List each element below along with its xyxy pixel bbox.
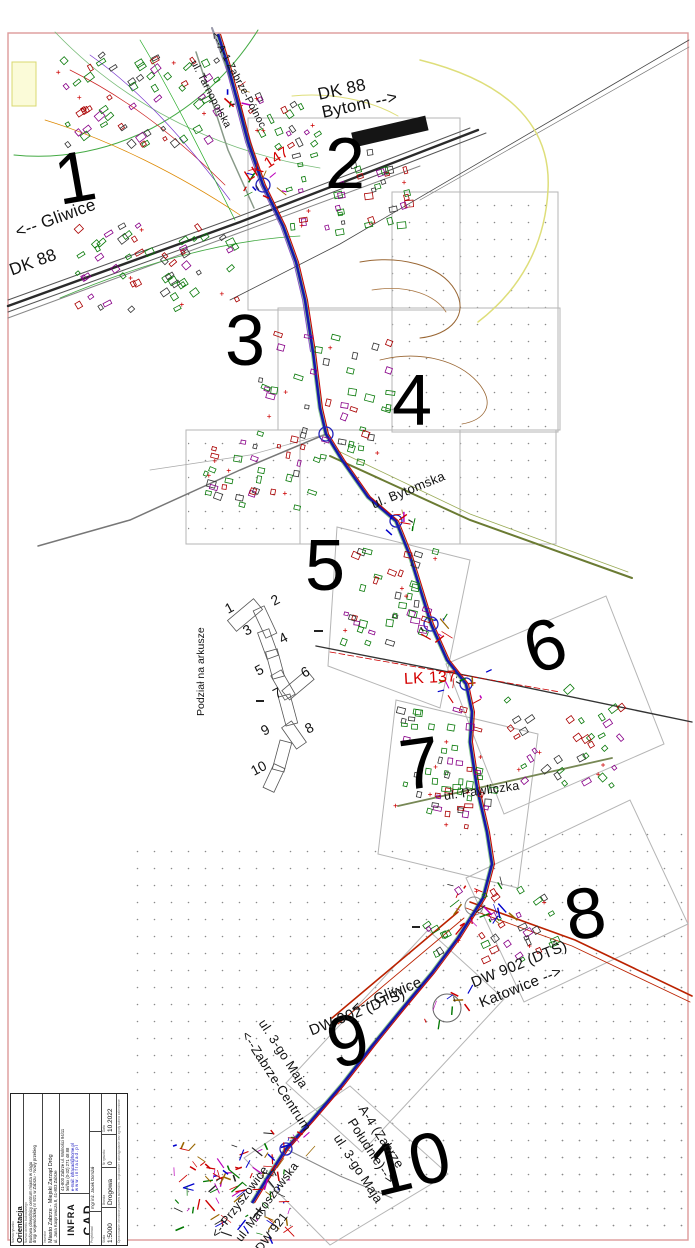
tb-investor-line2: ul. Jana Kasprowicza 8, 41-803 Zabrze — [54, 1096, 59, 1243]
sheet-index-title: Podział na arkusze — [195, 627, 207, 716]
sheet-number-5: 5 — [305, 530, 345, 602]
sheet-number-2: 2 — [325, 128, 365, 200]
tb-branch-value: Drogowa — [107, 1170, 114, 1205]
sheet-index-number: 8 — [302, 719, 317, 737]
sheet-index-number: 6 — [298, 663, 313, 681]
tb-scale-value: 1:5000 — [107, 1210, 114, 1243]
company-logo-cad: CAD — [81, 1204, 89, 1236]
sheet-index-number: 10 — [248, 757, 269, 779]
company-logo-infra: INFRA — [66, 1203, 76, 1236]
sheet-number-4: 4 — [392, 365, 432, 437]
tb-project-line2: drogi wojewódzkiej nr 921 w Zabrzu - Now… — [33, 1096, 38, 1243]
sheet-index-diagram: 1 2 3 4 5 6 7 8 9 10 Podział na arkusze — [188, 588, 328, 800]
title-block: Nazwa rysunku Orientacja Nazwa obiektu b… — [10, 1093, 128, 1246]
tb-designer: mgr inż. Jacek Domżał — [91, 1134, 96, 1209]
sheet-number-3: 3 — [225, 305, 265, 377]
tb-role-label: Projektował — [91, 1214, 95, 1243]
tb-signature-space — [90, 1094, 101, 1131]
sheet-index-number: 1 — [222, 599, 237, 617]
tb-number-value: 0 — [107, 1137, 114, 1165]
sheet-index-number: 2 — [268, 591, 283, 609]
tb-contact-www: w w w . i n f r a c a d . p l — [75, 1096, 80, 1191]
tb-date-value: 10.2022 — [107, 1096, 114, 1132]
tb-footer-note: Opracowanie chronione prawem autorskim -… — [117, 1094, 121, 1245]
sheet-index-number: 3 — [240, 621, 255, 639]
tb-drawing-name: Orientacja — [16, 1096, 23, 1243]
orientation-map-page: 1 2 3 4 5 6 7 8 9 10 Podział na arkusze … — [0, 0, 695, 1248]
rail-label-lk137: LK 137 — [404, 669, 457, 688]
sheet-index-number: 9 — [258, 721, 273, 739]
sheet-index-number: 5 — [252, 661, 267, 679]
sheet-index-number: 4 — [276, 629, 291, 647]
sheet-index-number: 7 — [270, 684, 285, 702]
